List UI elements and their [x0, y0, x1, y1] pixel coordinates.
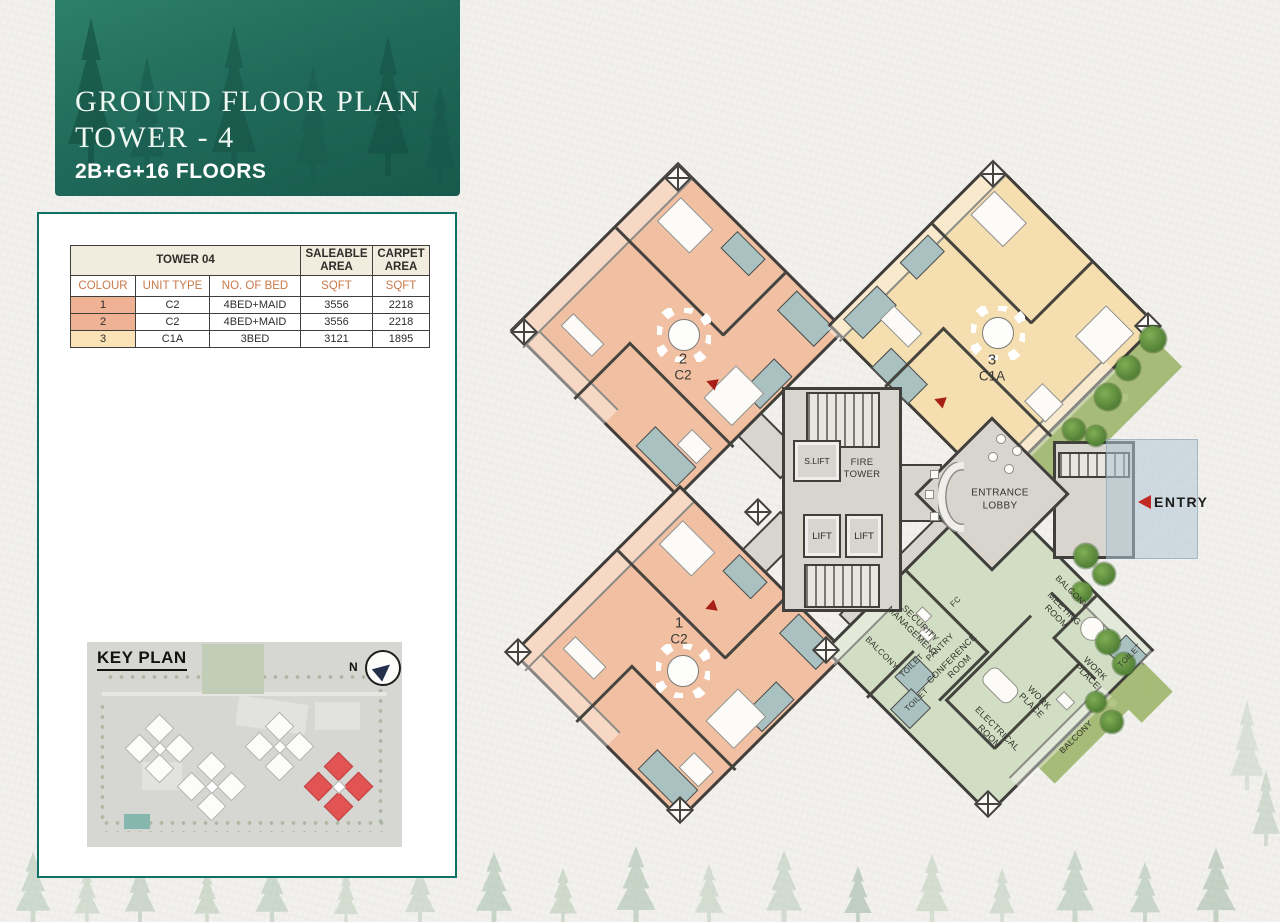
tree-icon	[840, 866, 876, 922]
unit-number: 2	[674, 351, 691, 368]
tree-icon	[1125, 862, 1165, 922]
lift-label: LIFT	[854, 531, 874, 542]
tree-icon	[1101, 711, 1123, 733]
col-header-carpet-sqft: SQFT	[373, 276, 430, 297]
lift-left: LIFT	[803, 514, 841, 558]
lift-right: LIFT	[845, 514, 883, 558]
keyplan-trees	[97, 702, 109, 822]
tree-icon	[330, 872, 362, 922]
unit-type-cell: C2	[136, 297, 210, 314]
stairs	[804, 564, 880, 608]
unit-3-label: 3 C1A	[979, 352, 1005, 383]
saleable-area-header: SALEABLE AREA	[301, 246, 373, 276]
colour-swatch-cell: 3	[71, 331, 136, 348]
page-title-line2: TOWER - 4	[75, 120, 421, 156]
info-panel: TOWER 04 SALEABLE AREA CARPET AREA COLOU…	[37, 212, 457, 878]
tree-icon	[1050, 850, 1100, 922]
conference-table	[979, 664, 1021, 706]
wall	[722, 272, 786, 336]
tree-icon	[1225, 700, 1269, 790]
sofa-furniture	[880, 305, 922, 347]
unit-type-cell: C1A	[136, 331, 210, 348]
tree-icon	[1086, 692, 1106, 712]
bed-furniture	[705, 688, 766, 749]
wall	[724, 595, 788, 659]
table-row: 1 C2 4BED+MAID 3556 2218	[71, 297, 430, 314]
sofa-furniture	[563, 636, 607, 680]
saleable-cell: 3121	[301, 331, 373, 348]
page-title-line1: GROUND FLOOR PLAN	[75, 84, 421, 120]
unit-2-label: 2 C2	[674, 351, 691, 382]
tree-icon	[1096, 630, 1120, 654]
north-arrow-icon	[372, 658, 395, 681]
dining-table	[667, 655, 699, 687]
table-row: 3 C1A 3BED 3121 1895	[71, 331, 430, 348]
reception-stool	[930, 470, 939, 479]
tree-icon	[1074, 544, 1098, 568]
unit-type-cell: C2	[136, 314, 210, 331]
table-title: TOWER 04	[71, 246, 301, 276]
table-row: 2 C2 4BED+MAID 3556 2218	[71, 314, 430, 331]
s-lift-label: S.LIFT	[804, 456, 830, 466]
keyplan-tower-highlighted	[310, 758, 368, 816]
tree-icon	[690, 864, 728, 922]
saleable-cell: 3556	[301, 314, 373, 331]
tree-icon	[470, 852, 518, 922]
reception-stool	[925, 490, 934, 499]
no-of-bed-cell: 4BED+MAID	[210, 314, 301, 331]
saleable-cell: 3556	[301, 297, 373, 314]
sofa-furniture	[561, 313, 605, 357]
tree-icon	[1095, 384, 1121, 410]
keyplan-building	[315, 702, 360, 730]
entrance-lobby-label: ENTRANCE LOBBY	[971, 488, 1028, 513]
unit-type: C2	[670, 632, 687, 647]
keyplan-tower	[183, 758, 241, 816]
carpet-cell: 2218	[373, 297, 430, 314]
colour-swatch-cell: 2	[71, 314, 136, 331]
fire-tower-label: FIRE TOWER	[844, 457, 881, 481]
balcony-strip	[527, 654, 620, 747]
carpet-cell: 1895	[373, 331, 430, 348]
col-header-no-of-bed: NO. OF BED	[210, 276, 301, 297]
balcony-strip	[525, 331, 618, 424]
key-plan: KEY PLAN N	[87, 642, 402, 847]
wall	[1030, 261, 1093, 324]
tree-icon	[1248, 770, 1280, 846]
spec-table: TOWER 04 SALEABLE AREA CARPET AREA COLOU…	[70, 245, 430, 348]
wall	[573, 341, 632, 400]
dining-table	[668, 319, 700, 351]
key-plan-title: KEY PLAN	[97, 648, 187, 671]
no-of-bed-cell: 3BED	[210, 331, 301, 348]
tree-icon	[1063, 419, 1085, 441]
carpet-area-header: CARPET AREA	[373, 246, 430, 276]
unit-type: C2	[674, 368, 691, 383]
tree-icon	[1116, 356, 1140, 380]
unit-1-label: 1 C2	[670, 615, 687, 646]
keyplan-tower	[251, 718, 309, 776]
lift-label: LIFT	[812, 531, 832, 542]
north-indicator	[365, 650, 401, 686]
reception-stool	[930, 512, 939, 521]
bathroom	[720, 231, 765, 276]
tree-icon	[1093, 563, 1115, 585]
tree-icon	[545, 868, 581, 922]
bathroom	[777, 290, 834, 347]
header-card: GROUND FLOOR PLAN TOWER - 4 2B+G+16 FLOO…	[55, 0, 460, 196]
unit-type: C1A	[979, 369, 1005, 384]
tree-icon	[985, 868, 1019, 922]
colour-swatch-cell: 1	[71, 297, 136, 314]
lobby-chair	[988, 452, 998, 462]
desk-furniture	[1055, 691, 1075, 711]
keyplan-pool	[124, 814, 150, 829]
tree-icon	[1086, 426, 1106, 446]
service-lift: S.LIFT	[793, 440, 841, 482]
tree-icon	[1140, 326, 1166, 352]
unit-number: 3	[979, 352, 1005, 369]
keyplan-tower	[131, 720, 189, 778]
keyplan-court	[202, 644, 264, 694]
dining-table	[982, 317, 1014, 349]
lobby-chair	[1012, 446, 1022, 456]
no-of-bed-cell: 4BED+MAID	[210, 297, 301, 314]
entry-arrow-icon	[1138, 495, 1151, 509]
carpet-cell: 2218	[373, 314, 430, 331]
entry-label: ENTRY	[1154, 494, 1208, 510]
wall	[575, 664, 634, 723]
col-header-saleable-sqft: SQFT	[301, 276, 373, 297]
north-label: N	[349, 660, 358, 674]
col-header-unit-type: UNIT TYPE	[136, 276, 210, 297]
tree-icon	[760, 850, 808, 922]
unit-number: 1	[670, 615, 687, 632]
tree-icon	[610, 846, 662, 922]
lobby-chair	[996, 434, 1006, 444]
floors-badge: 2B+G+16 FLOORS	[75, 160, 421, 184]
bed-furniture	[703, 365, 764, 426]
tree-icon	[420, 84, 460, 184]
lobby-chair	[1004, 464, 1014, 474]
tree-icon	[910, 854, 954, 922]
col-header-colour: COLOUR	[71, 276, 136, 297]
tree-icon	[1190, 848, 1242, 922]
keyplan-trees	[375, 686, 389, 826]
